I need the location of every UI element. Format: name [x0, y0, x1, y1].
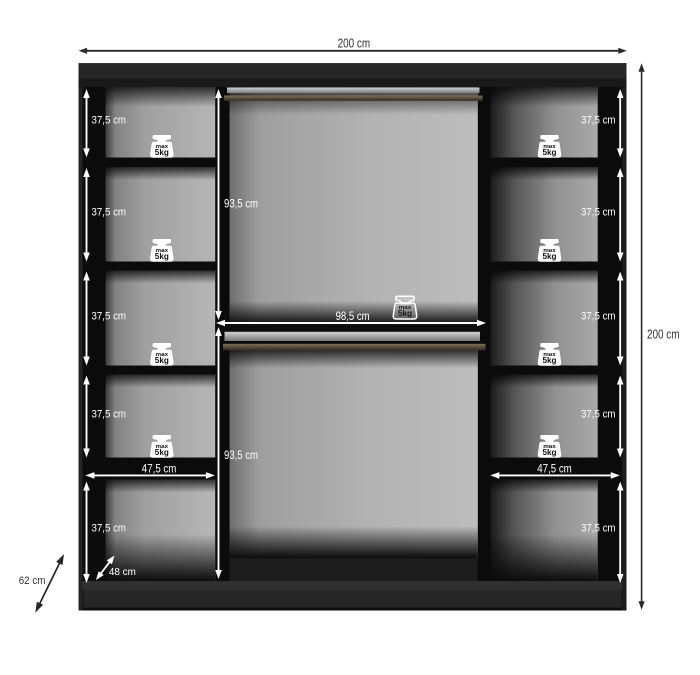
svg-text:200 cm: 200 cm	[647, 328, 680, 342]
svg-text:37,5 cm: 37,5 cm	[92, 310, 127, 322]
svg-text:48 cm: 48 cm	[109, 566, 136, 578]
svg-text:37,5 cm: 37,5 cm	[581, 408, 616, 420]
svg-text:47,5 cm: 47,5 cm	[142, 463, 177, 475]
svg-text:37,5 cm: 37,5 cm	[92, 408, 127, 420]
svg-text:47,5 cm: 47,5 cm	[537, 463, 572, 475]
svg-text:37,5 cm: 37,5 cm	[581, 523, 616, 535]
svg-text:37,5 cm: 37,5 cm	[92, 523, 127, 535]
svg-text:62 cm: 62 cm	[19, 575, 46, 587]
svg-text:93,5 cm: 93,5 cm	[224, 448, 258, 462]
svg-text:98,5 cm: 98,5 cm	[336, 311, 370, 323]
svg-text:37,5 cm: 37,5 cm	[92, 115, 127, 127]
svg-text:37,5 cm: 37,5 cm	[92, 207, 127, 219]
svg-text:37,5 cm: 37,5 cm	[581, 310, 616, 322]
svg-text:37,5 cm: 37,5 cm	[581, 115, 616, 127]
svg-text:37,5 cm: 37,5 cm	[581, 207, 616, 219]
svg-text:200 cm: 200 cm	[338, 37, 371, 51]
svg-text:93,5 cm: 93,5 cm	[224, 197, 258, 211]
